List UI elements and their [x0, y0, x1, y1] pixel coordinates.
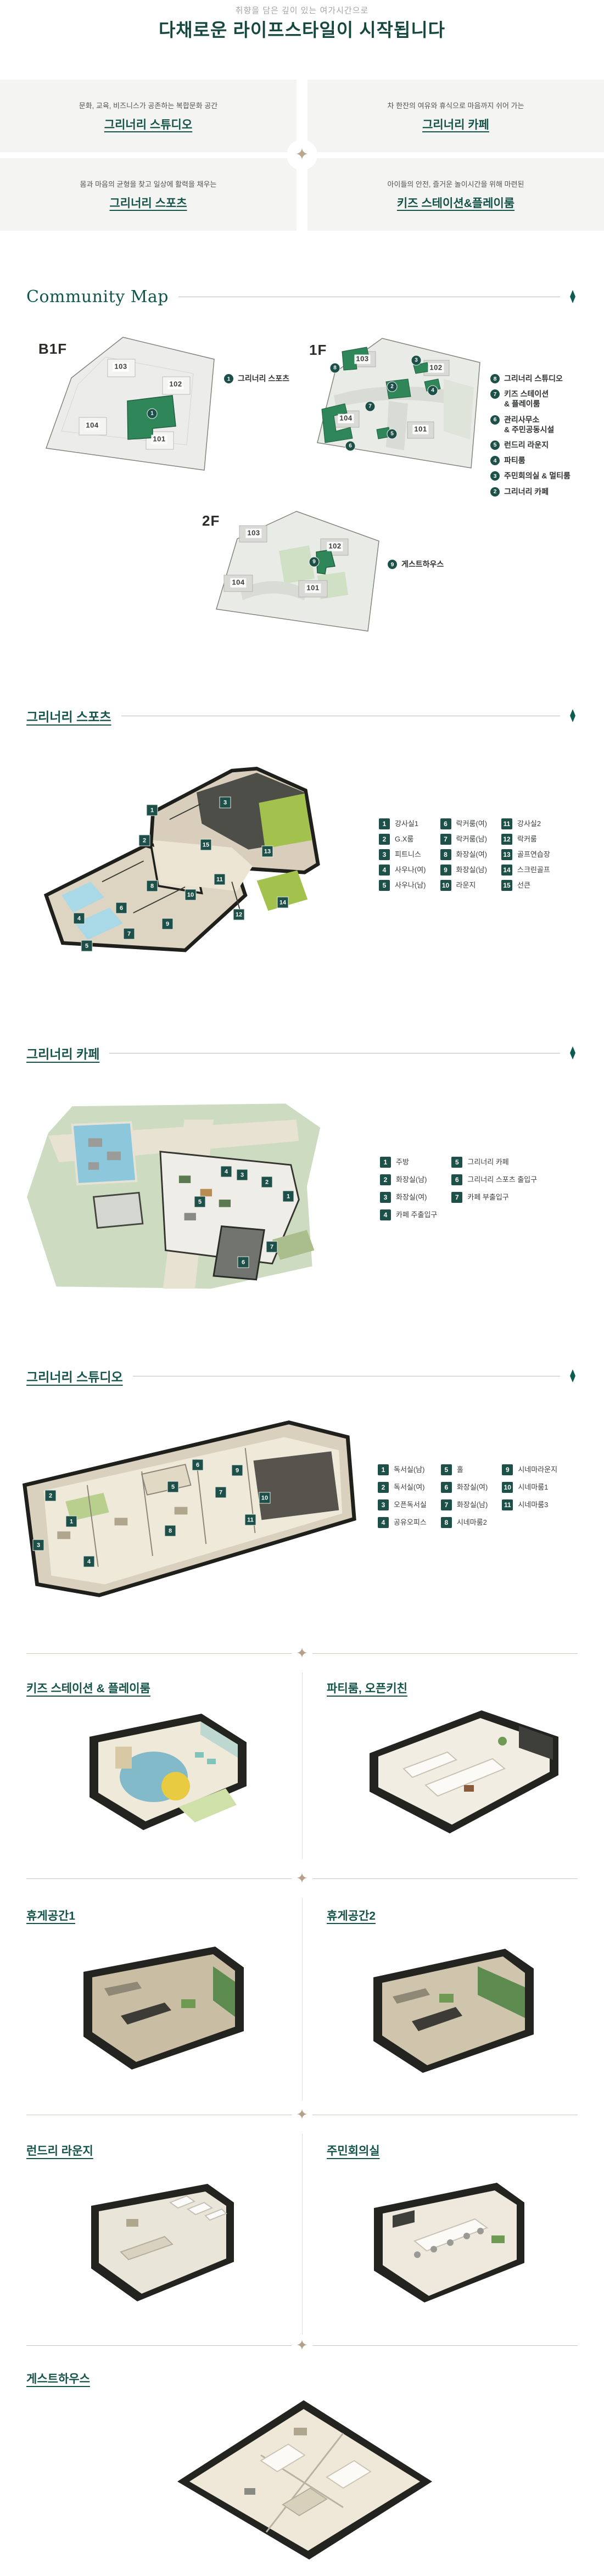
- legend-item: 6관리사무소 & 주민공동시설: [490, 415, 584, 434]
- legend-item: 4파티룸: [490, 455, 584, 465]
- meeting-room-render: [343, 2170, 552, 2315]
- legend-label: 락커룸: [517, 835, 537, 844]
- divider-line: [121, 716, 560, 716]
- diamond-icon: [570, 709, 575, 722]
- legend-item: 1주방: [380, 1157, 437, 1168]
- sports-section-header: 그리너리 스포츠: [26, 706, 575, 725]
- legend-item: 13골프연습장: [501, 849, 550, 860]
- map-1f-overlay: 1031021041018324765: [312, 335, 488, 472]
- legend-number-circle: 8: [490, 374, 500, 383]
- legend-item: 5사우나(남): [379, 880, 426, 891]
- map-marker: 2: [387, 382, 398, 392]
- map-legend-2f: 9게스트하우스: [388, 559, 444, 575]
- legend-item: 6화장실(여): [441, 1482, 488, 1493]
- legend-item: 6그리너리 스포츠 출입구: [451, 1174, 537, 1185]
- divider-line: [133, 1376, 560, 1376]
- map-legend-b1f: 1그리너리 스포츠: [224, 373, 289, 389]
- plan-marker: 9: [232, 1465, 243, 1476]
- plan-marker: 8: [165, 1525, 176, 1537]
- building-label: 102: [327, 542, 343, 551]
- room-title-party: 파티룸, 오픈키친: [327, 1680, 407, 1696]
- legend-label: 락커룸(남): [456, 835, 488, 844]
- map-b1f: 1031021041011: [40, 335, 221, 472]
- legend-number-circle: 5: [490, 441, 500, 450]
- building-label: 104: [338, 414, 354, 423]
- legend-number-square: 8: [441, 1517, 452, 1528]
- legend-column: 5홀6화장실(여)7화장실(남)8시네마룸2: [441, 1464, 488, 1535]
- diamond-icon: [570, 1369, 575, 1382]
- divider-line: [178, 297, 560, 297]
- section-divider: ✦: [26, 2115, 578, 2115]
- cafe-legend: 1주방2화장실(남)3화장실(여)4카페 주출입구5그리너리 카페6그리너리 스…: [380, 1157, 537, 1227]
- legend-item: 5홀: [441, 1464, 488, 1475]
- legend-label: 그리너리 스튜디오: [504, 373, 563, 383]
- diamond-icon: [570, 1046, 575, 1060]
- legend-number-square: 6: [441, 1482, 452, 1493]
- card-title: 그리너리 스포츠: [109, 194, 187, 211]
- sports-legend: 1강사실12G.X룸3피트니스4사우나(여)5사우나(남)6락커룸(여)7락커룸…: [379, 818, 550, 895]
- legend-number-square: 7: [441, 1499, 452, 1510]
- legend-item: 1독서실(남): [378, 1464, 427, 1475]
- plan-marker: 4: [83, 1556, 95, 1568]
- legend-label: 시네마룸1: [518, 1483, 548, 1492]
- legend-label: 파티룸: [504, 455, 525, 465]
- legend-number-square: 2: [380, 1174, 391, 1185]
- legend-label: 화장실(남): [456, 866, 488, 875]
- legend-item: 5그리너리 카페: [451, 1157, 537, 1168]
- legend-label: 사우나(남): [395, 881, 426, 890]
- legend-item: 3피트니스: [379, 849, 426, 860]
- room-title-kids: 키즈 스테이션 & 플레이룸: [26, 1680, 150, 1696]
- legend-item: 9시네마라운지: [502, 1464, 557, 1475]
- legend-label: 관리사무소 & 주민공동시설: [504, 415, 554, 434]
- map-marker: 4: [428, 386, 438, 396]
- legend-number-square: 14: [501, 865, 512, 876]
- sparkle-icon: ✦: [292, 1646, 312, 1660]
- plan-marker: 7: [124, 928, 135, 940]
- legend-label: 시네마룸2: [457, 1518, 487, 1527]
- page: 취향을 담은 깊이 있는 여가시간으로 다채로운 라이프스타일이 시작됩니다 문…: [0, 0, 604, 2576]
- studio-section-header: 그리너리 스튜디오: [26, 1367, 575, 1385]
- plan-marker: 1: [147, 805, 158, 816]
- map-marker: 5: [387, 429, 398, 439]
- legend-label: 주방: [396, 1158, 409, 1167]
- legend-label: 시네마라운지: [518, 1465, 557, 1475]
- room-title-rest1: 휴게공간1: [26, 1907, 75, 1923]
- legend-number-square: 10: [502, 1482, 513, 1493]
- column-divider: [302, 1672, 303, 1859]
- legend-item: 2독서실(여): [378, 1482, 427, 1493]
- legend-item: 11시네마룸3: [502, 1499, 557, 1510]
- plan-marker: 13: [262, 846, 273, 857]
- building-label: 102: [167, 380, 183, 389]
- legend-column: 1강사실12G.X룸3피트니스4사우나(여)5사우나(남): [379, 818, 426, 895]
- plan-marker: 3: [33, 1540, 44, 1551]
- legend-label: 락커룸(여): [456, 819, 488, 829]
- feature-card-sports: 몸과 마음의 균형을 찾고 일상에 활력을 채우는 그리너리 스포츠: [0, 158, 297, 231]
- legend-label: 화장실(남): [457, 1501, 488, 1510]
- legend-number-square: 3: [380, 1192, 391, 1203]
- legend-column: 1주방2화장실(남)3화장실(여)4카페 주출입구: [380, 1157, 437, 1227]
- legend-number-square: 5: [379, 880, 390, 891]
- legend-column: 11강사실212락커룸13골프연습장14스크린골프15선큰: [501, 818, 550, 895]
- room-title-guesthouse: 게스트하우스: [26, 2370, 90, 2387]
- legend-label: 그리너리 카페: [467, 1158, 508, 1167]
- map-marker: 7: [365, 402, 376, 412]
- guesthouse-render: [162, 2395, 448, 2565]
- section-divider: ✦: [26, 1653, 578, 1654]
- card-desc: 차 한잔의 여유와 휴식으로 마음까지 쉬어 가는: [388, 100, 524, 110]
- legend-label: 키즈 스테이션 & 플레이룸: [504, 389, 549, 409]
- legend-item: 3화장실(여): [380, 1192, 437, 1203]
- legend-item: 8그리너리 스튜디오: [490, 373, 584, 383]
- building-label: 101: [151, 435, 167, 444]
- building-label: 103: [245, 529, 261, 538]
- map-marker: 8: [330, 363, 340, 373]
- legend-label: 강사실1: [395, 819, 418, 829]
- plan-marker: 14: [277, 897, 289, 908]
- legend-number-square: 5: [451, 1157, 462, 1168]
- community-map-header: Community Map: [26, 287, 575, 306]
- plan-marker: 6: [238, 1257, 249, 1268]
- sparkle-icon: ✦: [292, 2107, 312, 2122]
- legend-item: 3오픈독서실: [378, 1499, 427, 1510]
- legend-label: 피트니스: [395, 850, 421, 860]
- rest-area1-render: [55, 1933, 264, 2084]
- legend-number-square: 4: [379, 865, 390, 876]
- legend-label: 골프연습장: [517, 850, 550, 860]
- legend-label: 스크린골프: [517, 866, 550, 875]
- legend-column: 1독서실(남)2독서실(여)3오픈독서실4공유오피스: [378, 1464, 427, 1535]
- room-title-rest2: 휴게공간2: [327, 1907, 376, 1923]
- legend-number-square: 9: [502, 1464, 513, 1475]
- legend-number-square: 13: [501, 849, 512, 860]
- legend-number-square: 1: [379, 818, 390, 829]
- legend-number-square: 11: [502, 1499, 513, 1510]
- column-divider: [302, 2134, 303, 2334]
- room-title-laundry: 런드리 라운지: [26, 2142, 93, 2159]
- column-divider: [302, 1898, 303, 2101]
- legend-column: 9시네마라운지10시네마룸111시네마룸3: [502, 1464, 557, 1535]
- plan-marker: 15: [200, 839, 212, 851]
- map-2f-overlay: 1031021041019: [208, 507, 389, 633]
- legend-label: 화장실(여): [457, 1483, 488, 1492]
- legend-label: 화장실(여): [456, 850, 488, 860]
- legend-column: 6락커룸(여)7락커룸(남)8화장실(여)9화장실(남)10라운지: [440, 818, 488, 895]
- feature-card-studio: 문화, 교육, 비즈니스가 공존하는 복합문화 공간 그리너리 스튜디오: [0, 80, 297, 152]
- legend-label: 런드리 라운지: [504, 440, 549, 450]
- plan-marker: 1: [66, 1516, 77, 1527]
- building-label: 104: [230, 578, 246, 588]
- legend-number-circle: 3: [490, 471, 500, 481]
- legend-label: 그리너리 카페: [504, 487, 549, 497]
- legend-number-circle: 1: [224, 374, 233, 383]
- plan-marker: 7: [215, 1487, 227, 1498]
- legend-label: 화장실(여): [396, 1193, 427, 1202]
- plan-marker: 10: [185, 889, 197, 901]
- section-title: 그리너리 스포츠: [26, 706, 111, 725]
- legend-label: 사우나(여): [395, 866, 426, 875]
- plan-marker: 7: [266, 1241, 278, 1253]
- legend-number-circle: 4: [490, 456, 500, 465]
- legend-item: 11강사실2: [501, 818, 550, 829]
- diamond-icon: [570, 290, 575, 303]
- legend-number-square: 3: [379, 849, 390, 860]
- building-label: 103: [113, 363, 128, 372]
- map-legend-1f: 8그리너리 스튜디오7키즈 스테이션 & 플레이룸6관리사무소 & 주민공동시설…: [490, 373, 584, 502]
- legend-label: 오픈독서실: [394, 1501, 427, 1510]
- legend-label: 그리너리 스포츠 출입구: [467, 1175, 537, 1185]
- divider-line: [109, 1053, 560, 1053]
- legend-number-square: 4: [380, 1209, 391, 1220]
- section-divider: ✦: [26, 1878, 578, 1879]
- legend-item: 4공유오피스: [378, 1517, 427, 1528]
- card-desc: 문화, 교육, 비즈니스가 공존하는 복합문화 공간: [79, 100, 218, 110]
- legend-item: 10시네마룸1: [502, 1482, 557, 1493]
- legend-label: 카페 주출입구: [396, 1211, 437, 1220]
- legend-label: 독서실(남): [394, 1465, 425, 1475]
- header-subtitle: 취향을 담은 깊이 있는 여가시간으로: [0, 4, 604, 16]
- legend-label: 화장실(남): [396, 1175, 427, 1185]
- legend-number-square: 7: [451, 1192, 462, 1203]
- card-title: 그리너리 스튜디오: [104, 116, 192, 132]
- map-b1f-overlay: 1031021041011: [40, 335, 221, 472]
- section-divider: ✦: [26, 2345, 578, 2346]
- building-label: 101: [305, 584, 321, 593]
- legend-label: 게스트하우스: [401, 559, 444, 569]
- section-title: 그리너리 카페: [26, 1044, 99, 1062]
- feature-card-kids: 아이들의 안전, 즐거운 놀이시간을 위해 마련된 키즈 스테이션&플레이룸: [307, 158, 604, 231]
- card-desc: 몸과 마음의 균형을 찾고 일상에 활력을 채우는: [80, 179, 217, 189]
- plan-marker: 12: [233, 909, 245, 921]
- legend-number-square: 9: [440, 865, 451, 876]
- rest-area2-render: [340, 1933, 560, 2084]
- legend-item: 12락커룸: [501, 834, 550, 845]
- section-title: Community Map: [26, 287, 169, 306]
- building-label: 104: [84, 421, 100, 431]
- plan-marker: 6: [116, 902, 127, 914]
- plan-marker: 11: [245, 1514, 256, 1526]
- legend-number-square: 4: [378, 1517, 389, 1528]
- feature-card-cafe: 차 한잔의 여유와 휴식으로 마음까지 쉬어 가는 그리너리 카페: [307, 80, 604, 152]
- plan-marker: 5: [167, 1481, 179, 1493]
- legend-item: 4카페 주출입구: [380, 1209, 437, 1220]
- map-marker: 6: [345, 441, 356, 451]
- building-label: 101: [412, 425, 428, 434]
- legend-number-square: 1: [380, 1157, 391, 1168]
- laundry-lounge-render: [60, 2170, 258, 2315]
- building-label: 102: [428, 364, 444, 373]
- plan-marker: 10: [259, 1492, 271, 1504]
- legend-item: 8화장실(여): [440, 849, 488, 860]
- legend-label: 카페 부출입구: [467, 1193, 508, 1202]
- legend-item: 4사우나(여): [379, 865, 426, 876]
- legend-item: 14스크린골프: [501, 865, 550, 876]
- cafe-section-header: 그리너리 카페: [26, 1044, 575, 1062]
- room-title-meeting: 주민회의실: [327, 2142, 380, 2159]
- legend-number-square: 1: [378, 1464, 389, 1475]
- sparkle-icon: ✦: [292, 1871, 312, 1886]
- plan-marker: 11: [214, 874, 226, 885]
- legend-item: 2그리너리 카페: [490, 487, 584, 497]
- legend-item: 6락커룸(여): [440, 818, 488, 829]
- legend-item: 1그리너리 스포츠: [224, 373, 289, 383]
- studio-legend: 1독서실(남)2독서실(여)3오픈독서실4공유오피스5홀6화장실(여)7화장실(…: [378, 1464, 557, 1535]
- map-1f: 1031021041018324765: [312, 335, 488, 472]
- plan-marker: 3: [237, 1169, 248, 1181]
- cafe-floorplan-overlay: 1234567: [8, 1090, 382, 1293]
- legend-number-square: 12: [501, 834, 512, 845]
- legend-item: 7화장실(남): [441, 1499, 488, 1510]
- map-marker: 9: [309, 557, 320, 567]
- legend-label: 독서실(여): [394, 1483, 425, 1492]
- plan-marker: 4: [74, 913, 85, 924]
- legend-number-square: 11: [501, 818, 512, 829]
- legend-item: 3주민회의실 & 멀티룸: [490, 471, 584, 481]
- plan-marker: 6: [192, 1459, 204, 1471]
- legend-number-square: 3: [378, 1499, 389, 1510]
- plan-marker: 3: [220, 797, 231, 809]
- legend-number-square: 8: [440, 849, 451, 860]
- legend-number-square: 2: [379, 834, 390, 845]
- sparkle-icon: ✦: [292, 2338, 312, 2352]
- legend-item: 8시네마룸2: [441, 1517, 488, 1528]
- legend-label: 그리너리 스포츠: [238, 373, 289, 383]
- plan-marker: 2: [261, 1177, 273, 1188]
- map-2f: 1031021041019: [208, 507, 389, 633]
- legend-item: 7카페 부출입구: [451, 1192, 537, 1203]
- legend-label: 강사실2: [517, 819, 541, 829]
- sports-floorplan-overlay: 123456789101112131415: [14, 762, 398, 970]
- legend-number-square: 6: [451, 1174, 462, 1185]
- legend-item: 7락커룸(남): [440, 834, 488, 845]
- kids-playroom-render: [63, 1703, 266, 1843]
- plan-marker: 8: [147, 880, 158, 892]
- legend-number-circle: 6: [490, 415, 500, 425]
- legend-item: 2G.X룸: [379, 834, 426, 845]
- legend-item: 10라운지: [440, 880, 488, 891]
- legend-item: 9게스트하우스: [388, 559, 444, 569]
- legend-number-square: 7: [440, 834, 451, 845]
- legend-item: 7키즈 스테이션 & 플레이룸: [490, 389, 584, 409]
- section-title: 그리너리 스튜디오: [26, 1367, 123, 1385]
- page-title: 다채로운 라이프스타일이 시작됩니다: [0, 15, 604, 42]
- legend-item: 5런드리 라운지: [490, 440, 584, 450]
- legend-number-square: 6: [440, 818, 451, 829]
- card-title: 키즈 스테이션&플레이룸: [397, 194, 514, 211]
- plan-marker: 5: [194, 1196, 206, 1208]
- legend-label: G.X룸: [395, 835, 413, 844]
- building-label: 103: [354, 355, 370, 364]
- plan-marker: 4: [221, 1166, 232, 1178]
- legend-number-circle: 9: [388, 560, 397, 569]
- studio-floorplan-overlay: 1234567891011: [5, 1403, 365, 1616]
- legend-label: 주민회의실 & 멀티룸: [504, 471, 571, 481]
- map-marker: 1: [147, 409, 158, 419]
- legend-item: 15선큰: [501, 880, 550, 891]
- legend-number-square: 10: [440, 880, 451, 891]
- card-desc: 아이들의 안전, 즐거운 놀이시간을 위해 마련된: [388, 179, 524, 189]
- legend-label: 홀: [457, 1465, 463, 1475]
- plan-marker: 5: [81, 940, 93, 952]
- sparkle-icon: ✦: [287, 140, 317, 170]
- legend-number-square: 15: [501, 880, 512, 891]
- legend-label: 선큰: [517, 881, 530, 890]
- legend-label: 공유오피스: [394, 1518, 427, 1527]
- legend-label: 시네마룸3: [518, 1501, 548, 1510]
- plan-marker: 1: [283, 1191, 294, 1202]
- cafe-floorplan: 1234567: [8, 1090, 382, 1293]
- legend-number-circle: 2: [490, 487, 500, 497]
- legend-label: 라운지: [456, 881, 476, 890]
- partyroom-render: [338, 1703, 574, 1843]
- plan-marker: 2: [139, 835, 150, 846]
- plan-marker: 9: [162, 918, 174, 930]
- legend-number-circle: 7: [490, 389, 500, 399]
- studio-floorplan: 1234567891011: [5, 1403, 365, 1616]
- legend-number-square: 2: [378, 1482, 389, 1493]
- map-marker: 3: [411, 355, 422, 366]
- legend-item: 2화장실(남): [380, 1174, 437, 1185]
- legend-column: 5그리너리 카페6그리너리 스포츠 출입구7카페 부출입구: [451, 1157, 537, 1227]
- plan-marker: 2: [45, 1490, 57, 1502]
- legend-number-square: 5: [441, 1464, 452, 1475]
- sports-floorplan: 123456789101112131415: [14, 762, 398, 970]
- card-title: 그리너리 카페: [422, 116, 489, 132]
- legend-item: 9화장실(남): [440, 865, 488, 876]
- legend-item: 1강사실1: [379, 818, 426, 829]
